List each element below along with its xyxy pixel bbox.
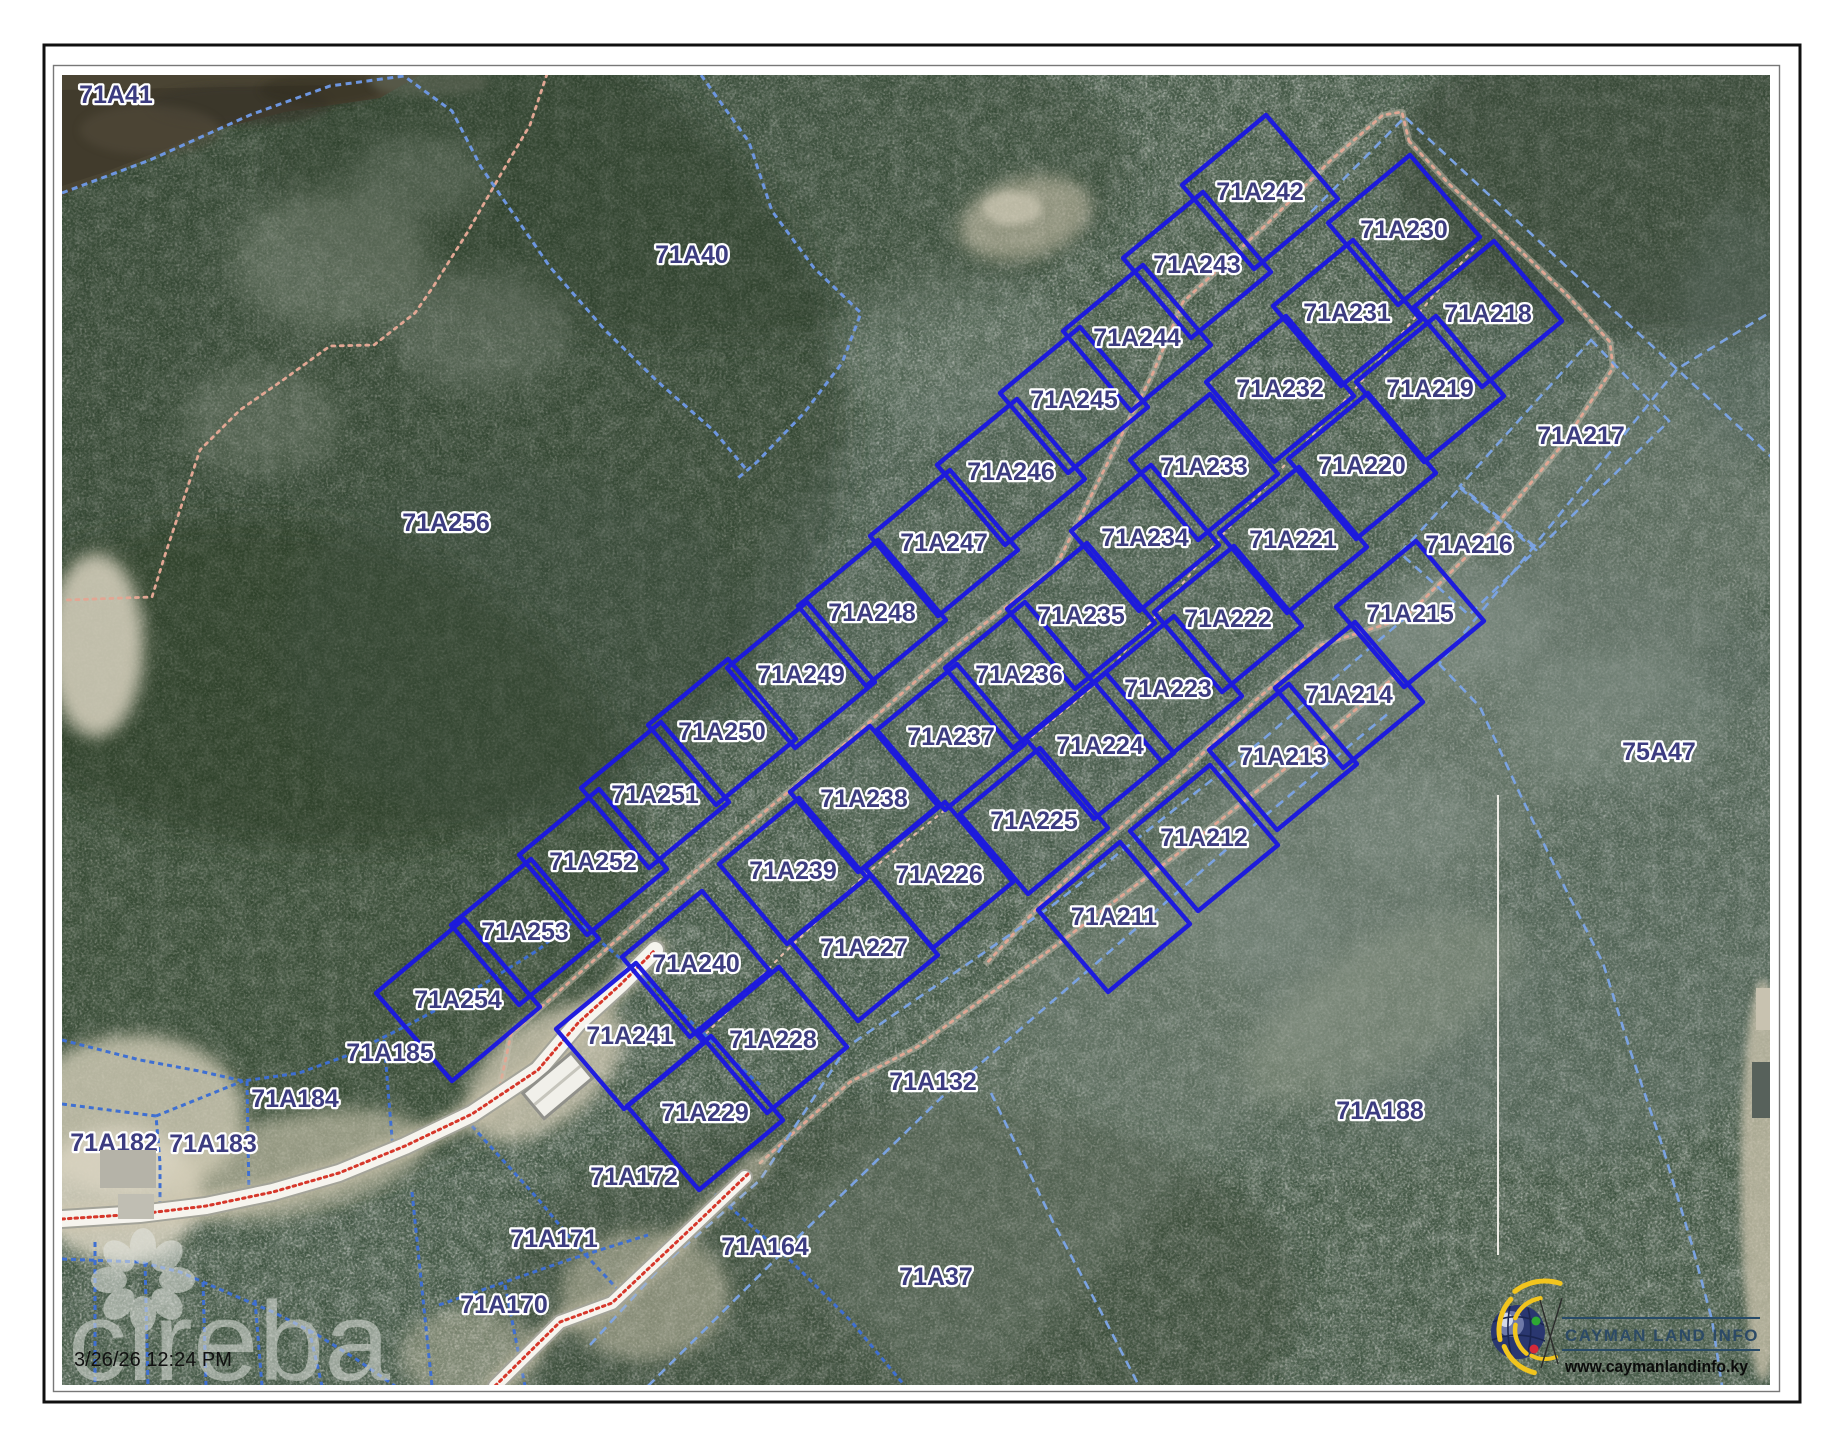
svg-text:71A253: 71A253 bbox=[481, 918, 569, 946]
svg-text:71A237: 71A237 bbox=[907, 723, 995, 751]
svg-text:71A233: 71A233 bbox=[1160, 453, 1248, 481]
svg-text:71A37: 71A37 bbox=[899, 1263, 973, 1291]
svg-text:71A245: 71A245 bbox=[1030, 386, 1118, 414]
svg-text:71A249: 71A249 bbox=[757, 661, 845, 689]
svg-text:71A227: 71A227 bbox=[820, 934, 908, 962]
svg-text:71A223: 71A223 bbox=[1124, 675, 1212, 703]
svg-text:71A224: 71A224 bbox=[1056, 732, 1144, 760]
svg-text:75A47: 75A47 bbox=[1622, 738, 1696, 766]
svg-text:71A184: 71A184 bbox=[251, 1085, 339, 1113]
svg-text:71A236: 71A236 bbox=[975, 661, 1063, 689]
svg-text:71A226: 71A226 bbox=[895, 861, 983, 889]
svg-text:71A216: 71A216 bbox=[1425, 531, 1513, 559]
svg-text:71A228: 71A228 bbox=[729, 1026, 817, 1054]
svg-text:71A132: 71A132 bbox=[889, 1068, 977, 1096]
svg-text:71A250: 71A250 bbox=[678, 718, 766, 746]
svg-text:71A254: 71A254 bbox=[414, 986, 502, 1014]
svg-text:71A41: 71A41 bbox=[79, 81, 153, 109]
svg-text:71A239: 71A239 bbox=[749, 857, 837, 885]
svg-text:71A232: 71A232 bbox=[1236, 375, 1324, 403]
svg-text:71A188: 71A188 bbox=[1336, 1097, 1424, 1125]
svg-text:71A164: 71A164 bbox=[721, 1233, 809, 1261]
svg-text:www.caymanlandinfo.ky: www.caymanlandinfo.ky bbox=[1564, 1357, 1748, 1376]
svg-text:71A251: 71A251 bbox=[611, 781, 699, 809]
svg-text:71A241: 71A241 bbox=[586, 1022, 674, 1050]
svg-text:71A244: 71A244 bbox=[1093, 324, 1181, 352]
svg-text:71A212: 71A212 bbox=[1160, 824, 1248, 852]
svg-text:71A242: 71A242 bbox=[1216, 178, 1304, 206]
svg-text:71A238: 71A238 bbox=[820, 785, 908, 813]
svg-text:71A171: 71A171 bbox=[510, 1225, 598, 1253]
svg-text:71A252: 71A252 bbox=[549, 848, 637, 876]
svg-text:71A248: 71A248 bbox=[828, 599, 916, 627]
svg-text:71A247: 71A247 bbox=[900, 529, 988, 557]
svg-text:71A221: 71A221 bbox=[1249, 526, 1337, 554]
svg-text:71A246: 71A246 bbox=[967, 458, 1055, 486]
svg-text:71A219: 71A219 bbox=[1386, 375, 1474, 403]
svg-text:71A243: 71A243 bbox=[1153, 251, 1241, 279]
svg-text:71A230: 71A230 bbox=[1360, 216, 1448, 244]
svg-text:71A240: 71A240 bbox=[652, 950, 740, 978]
svg-text:71A229: 71A229 bbox=[661, 1099, 749, 1127]
svg-text:71A220: 71A220 bbox=[1318, 452, 1406, 480]
svg-text:71A222: 71A222 bbox=[1184, 605, 1272, 633]
svg-text:71A211: 71A211 bbox=[1071, 903, 1157, 931]
svg-text:71A256: 71A256 bbox=[402, 509, 490, 537]
svg-text:71A214: 71A214 bbox=[1305, 681, 1393, 709]
svg-text:CAYMAN LAND INFO: CAYMAN LAND INFO bbox=[1565, 1326, 1759, 1345]
svg-text:71A231: 71A231 bbox=[1303, 299, 1391, 327]
svg-text:71A215: 71A215 bbox=[1366, 600, 1454, 628]
svg-text:cireba: cireba bbox=[68, 1279, 391, 1404]
svg-text:71A225: 71A225 bbox=[990, 807, 1078, 835]
svg-text:71A185: 71A185 bbox=[346, 1039, 434, 1067]
svg-text:71A218: 71A218 bbox=[1444, 300, 1532, 328]
svg-text:71A183: 71A183 bbox=[169, 1130, 257, 1158]
svg-text:3/26/26 12:24 PM: 3/26/26 12:24 PM bbox=[74, 1349, 232, 1371]
svg-text:71A172: 71A172 bbox=[590, 1163, 678, 1191]
svg-text:71A234: 71A234 bbox=[1101, 524, 1189, 552]
svg-text:71A213: 71A213 bbox=[1239, 743, 1327, 771]
svg-text:71A170: 71A170 bbox=[460, 1291, 548, 1319]
svg-text:71A217: 71A217 bbox=[1537, 422, 1625, 450]
svg-text:71A235: 71A235 bbox=[1037, 602, 1125, 630]
svg-text:71A40: 71A40 bbox=[655, 241, 729, 269]
